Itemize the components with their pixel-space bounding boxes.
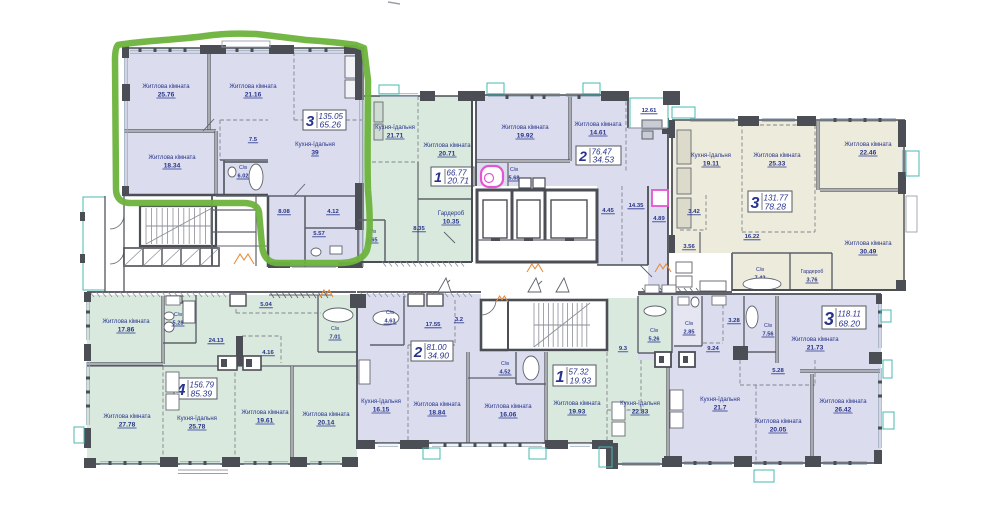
svg-text:Житлова кімната: Житлова кімната (484, 404, 532, 410)
svg-text:С/в: С/в (510, 167, 518, 173)
svg-text:34.53: 34.53 (593, 155, 615, 165)
svg-text:34.90: 34.90 (428, 351, 450, 361)
svg-text:Житлова кімната: Житлова кімната (791, 337, 839, 343)
svg-text:39: 39 (311, 150, 319, 157)
svg-text:Кухня-їдальня: Кухня-їдальня (361, 399, 401, 405)
svg-text:С/в: С/в (756, 267, 764, 273)
svg-text:Кухня-їдальня: Кухня-їдальня (295, 142, 335, 148)
svg-text:Житлова кімната: Житлова кімната (142, 84, 190, 90)
svg-text:27.78: 27.78 (119, 422, 136, 429)
svg-text:Кухня-їдальня: Кухня-їдальня (375, 125, 415, 131)
svg-text:Житлова кімната: Житлова кімната (501, 125, 549, 131)
svg-text:68.20: 68.20 (839, 319, 861, 329)
svg-text:Житлова кімната: Житлова кімната (819, 399, 867, 405)
svg-text:3.42: 3.42 (688, 209, 700, 215)
svg-text:5.28: 5.28 (772, 368, 784, 374)
svg-text:14.61: 14.61 (590, 130, 607, 137)
svg-text:10.35: 10.35 (443, 219, 460, 226)
svg-text:30.49: 30.49 (860, 249, 877, 256)
svg-text:С/в: С/в (386, 310, 394, 316)
svg-text:22.46: 22.46 (860, 150, 877, 157)
svg-text:1: 1 (434, 169, 442, 185)
svg-text:Житлова кімната: Житлова кімната (241, 410, 289, 416)
svg-text:85.39: 85.39 (191, 389, 213, 399)
svg-text:С/в: С/в (239, 165, 247, 171)
svg-text:19.61: 19.61 (257, 418, 274, 425)
svg-text:Житлова кімната: Житлова кімната (413, 402, 461, 408)
svg-text:118.11: 118.11 (838, 310, 861, 319)
svg-text:4.16: 4.16 (262, 350, 274, 356)
svg-text:22.83: 22.83 (632, 409, 649, 416)
svg-text:8.08: 8.08 (278, 209, 290, 215)
svg-text:25.78: 25.78 (189, 424, 206, 431)
svg-text:Кухня-їдальня: Кухня-їдальня (177, 416, 217, 422)
svg-text:Житлова кімната: Житлова кімната (574, 122, 622, 128)
svg-text:8.35: 8.35 (413, 226, 425, 232)
svg-text:21.16: 21.16 (245, 92, 262, 99)
svg-text:65.26: 65.26 (320, 120, 342, 130)
svg-text:Гардероб: Гардероб (801, 269, 824, 275)
svg-text:20.71: 20.71 (439, 151, 456, 158)
svg-text:20.14: 20.14 (318, 420, 335, 427)
svg-text:17.86: 17.86 (118, 327, 135, 334)
svg-text:Житлова кімната: Житлова кімната (753, 153, 801, 159)
svg-text:19.92: 19.92 (517, 133, 534, 140)
svg-text:Житлова кімната: Житлова кімната (423, 143, 471, 149)
svg-text:3.2: 3.2 (455, 317, 464, 323)
svg-text:4.45: 4.45 (602, 208, 614, 214)
svg-text:7.5: 7.5 (249, 137, 258, 143)
svg-text:16.06: 16.06 (500, 412, 517, 419)
svg-text:20.05: 20.05 (770, 427, 787, 434)
svg-text:9.3: 9.3 (619, 346, 628, 352)
svg-text:25.33: 25.33 (769, 161, 786, 168)
svg-text:С/в: С/в (501, 361, 509, 367)
svg-text:Кухня-їдальня: Кухня-їдальня (700, 397, 740, 403)
svg-text:9.24: 9.24 (707, 346, 719, 352)
svg-text:Кухня-їдальня: Кухня-їдальня (691, 153, 731, 159)
svg-text:Житлова кімната: Житлова кімната (553, 401, 601, 407)
svg-text:21.71: 21.71 (387, 133, 404, 140)
svg-text:С/в: С/в (331, 326, 339, 332)
svg-text:18.84: 18.84 (429, 410, 446, 417)
svg-text:21.7: 21.7 (714, 405, 727, 412)
svg-text:Житлова кімната: Житлова кімната (102, 319, 150, 325)
svg-text:5.57: 5.57 (313, 231, 325, 237)
svg-text:16.15: 16.15 (373, 407, 390, 414)
svg-text:Житлова кімната: Житлова кімната (754, 419, 802, 425)
svg-text:С/в: С/в (174, 312, 182, 318)
svg-text:18.34: 18.34 (164, 163, 181, 170)
svg-text:3: 3 (824, 309, 834, 329)
svg-text:Житлова кімната: Житлова кімната (302, 412, 350, 418)
svg-text:Житлова кімната: Житлова кімната (844, 142, 892, 148)
svg-text:3.56: 3.56 (683, 244, 695, 250)
svg-text:24.13: 24.13 (209, 338, 224, 344)
svg-text:19.93: 19.93 (569, 409, 586, 416)
svg-text:25.76: 25.76 (158, 92, 175, 99)
svg-text:Гардероб: Гардероб (438, 211, 465, 217)
svg-text:1: 1 (556, 369, 565, 386)
svg-text:14.35: 14.35 (629, 203, 644, 209)
svg-text:С/в: С/в (685, 321, 693, 327)
svg-text:17.55: 17.55 (426, 322, 441, 328)
svg-text:3.28: 3.28 (728, 318, 740, 324)
svg-text:12.61: 12.61 (642, 108, 657, 114)
svg-text:Житлова кімната: Житлова кімната (229, 84, 277, 90)
svg-text:26.42: 26.42 (835, 407, 852, 414)
svg-text:3: 3 (306, 113, 315, 130)
svg-text:78.28: 78.28 (765, 202, 787, 212)
svg-text:20.71: 20.71 (447, 176, 470, 186)
svg-text:2: 2 (413, 344, 423, 361)
svg-text:19.11: 19.11 (703, 161, 719, 168)
svg-text:19.93: 19.93 (570, 376, 592, 386)
svg-text:4.12: 4.12 (327, 209, 339, 215)
svg-text:Житлова кімната: Житлова кімната (844, 241, 892, 247)
svg-text:5.04: 5.04 (260, 302, 272, 308)
svg-text:4.89: 4.89 (653, 216, 665, 222)
svg-text:С/в: С/в (650, 328, 658, 334)
svg-text:3: 3 (751, 195, 760, 212)
svg-text:21.73: 21.73 (807, 345, 824, 352)
svg-text:16.22: 16.22 (745, 234, 760, 240)
svg-text:2: 2 (578, 148, 587, 164)
svg-text:Житлова кімната: Житлова кімната (148, 155, 196, 161)
svg-text:С/в: С/в (764, 323, 772, 329)
svg-text:Житлова кімната: Житлова кімната (103, 414, 151, 420)
svg-text:Кухня-їдальня: Кухня-їдальня (620, 401, 660, 407)
